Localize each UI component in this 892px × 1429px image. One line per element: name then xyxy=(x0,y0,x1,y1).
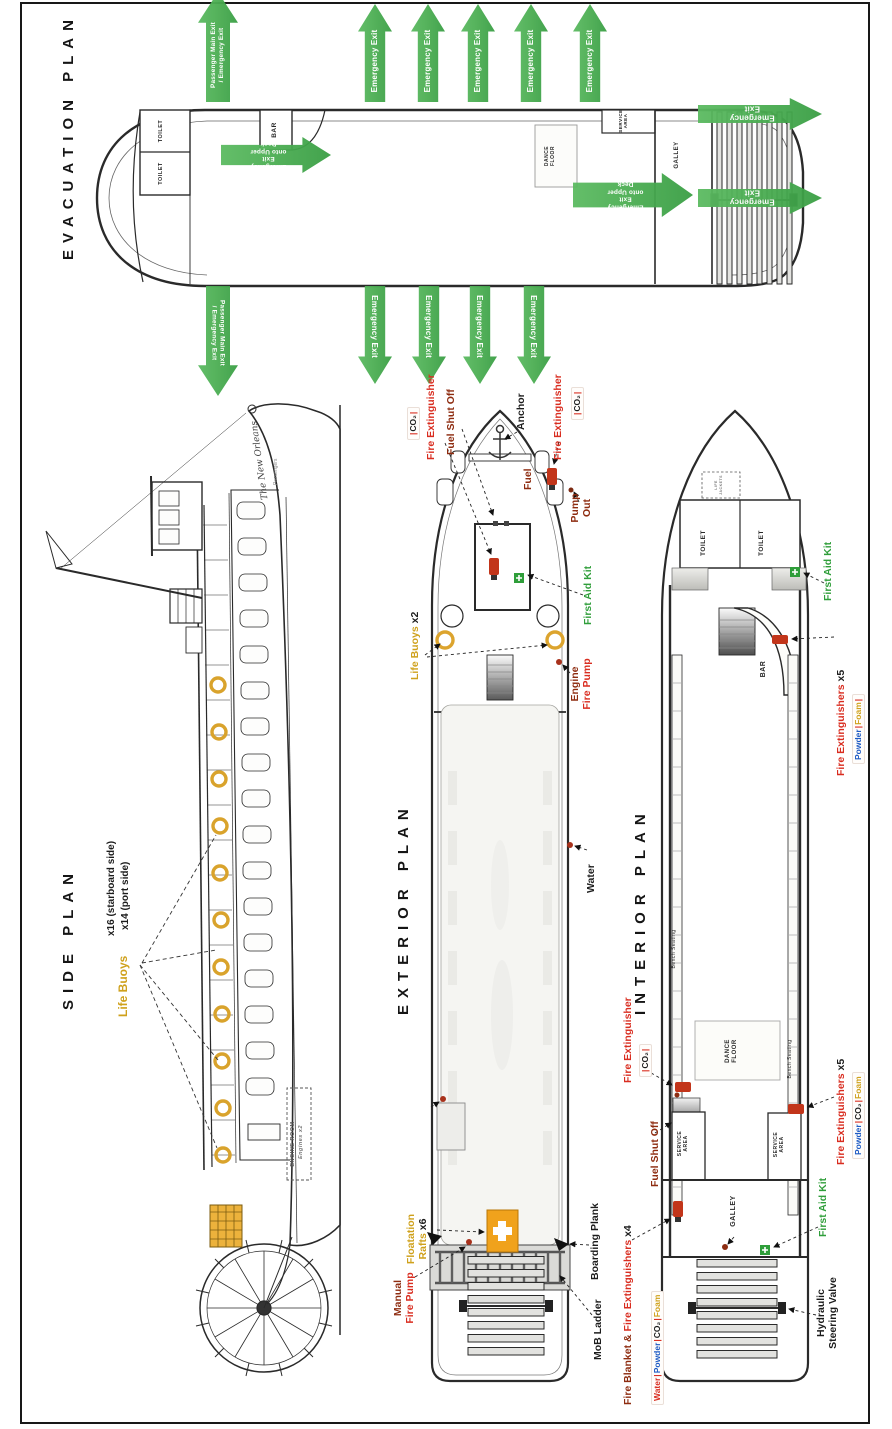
emergency-exit-arrow: Emergency Exit xyxy=(514,4,548,102)
life-buoy-row xyxy=(211,678,230,1162)
ext-table xyxy=(441,605,463,627)
paddle-wheel xyxy=(196,1237,332,1376)
life-buoys-x2-label: Life Buoys x2 xyxy=(410,612,422,680)
water-label: Water xyxy=(586,864,598,893)
life-buoys-label: Life Buoys xyxy=(117,956,130,1017)
engine-room-label: ENGINE ROOM xyxy=(290,1114,296,1174)
ext-wheelhouse xyxy=(475,524,530,610)
side-cabin-windows xyxy=(237,502,274,1095)
int-extinguisher-icon xyxy=(788,1104,804,1114)
plan-sheet: EVACUATION PLAN SIDE PLAN EXTERIOR PLAN … xyxy=(22,4,870,1424)
int-toilet-b-label: TOILET xyxy=(758,523,765,563)
fire-extinguishers-x5-label: Fire Extinguishers x5 xyxy=(836,670,848,776)
evac-dance-floor-label-2: FLOOR xyxy=(550,146,556,166)
first-aid-kit-label: First Aid Kit xyxy=(823,542,835,601)
int-extinguisher-icon xyxy=(675,1082,691,1092)
engine-fire-pump-label: EngineFire Pump xyxy=(570,654,594,714)
water-powder-co2-foam-badges: Water|Powder|CO₂|Foam xyxy=(651,1291,664,1405)
evac-hull xyxy=(97,110,803,286)
int-galley-label: GALLEY xyxy=(730,1186,738,1236)
evacuation-plan-title: EVACUATION PLAN xyxy=(60,13,77,260)
fuel-shut-off-label: Fuel Shut Off xyxy=(446,389,458,455)
ext-table xyxy=(537,605,559,627)
int-side-locker xyxy=(772,568,806,590)
int-service-label-2: AREA xyxy=(683,1135,689,1151)
passengers-plate: Passengers xyxy=(274,459,280,485)
int-extinguisher-icon xyxy=(673,1201,683,1217)
int-dance-label-2: FLOOR xyxy=(732,1039,738,1063)
powder-foam-badges: Powder|Foam| xyxy=(852,694,865,764)
life-buoys-pointer-lines xyxy=(140,835,218,1148)
fire-extinguisher-label: Fire Extinguisher xyxy=(623,997,635,1083)
evac-service-area xyxy=(602,110,655,133)
wheelhouse-extinguisher-icon xyxy=(489,558,499,575)
engine-fire-pump-dot xyxy=(556,659,562,665)
int-bow-locker-label: LIFE JACKETS xyxy=(714,472,723,498)
int-galley-first-aid-icon xyxy=(760,1245,770,1255)
ext-fuel-tank xyxy=(437,1103,465,1150)
manual-fire-pump-label: ManualFire Pump xyxy=(393,1267,417,1329)
ext-fuel-dot xyxy=(440,1096,446,1102)
pump-out-label: Pump Out xyxy=(570,485,594,531)
manual-fire-pump-dot xyxy=(466,1239,472,1245)
hydraulic-steering-valve-label: HydraulicSteering Valve xyxy=(816,1258,840,1368)
floatation-rafts-label: FloatationRafts x6 xyxy=(406,1204,430,1274)
int-bar-label: BAR xyxy=(760,649,768,689)
emergency-exit-arrow: Emergency Exit xyxy=(411,4,445,102)
water-dot xyxy=(567,842,573,848)
boarding-plank-label: Boarding Plank xyxy=(590,1203,602,1280)
ext-fore-extinguisher-icon xyxy=(547,468,557,485)
fire-blanket-extinguishers-label: Fire Blanket & Fire Extinguishers x4 xyxy=(623,1225,635,1405)
co2-badge: |CO₂| xyxy=(407,407,420,440)
stern-counter xyxy=(267,1245,290,1304)
evac-galley-label: GALLEY xyxy=(674,130,681,180)
mob-ladder-grid xyxy=(210,1205,242,1247)
side-door xyxy=(248,1124,280,1140)
fire-extinguisher-label: Fire Extinguisher xyxy=(553,374,565,460)
emergency-exit-arrow: Emergency Exit xyxy=(358,4,392,102)
passenger-main-exit-arrow-port: Passenger Main Exit/ Emergency Exit xyxy=(198,286,238,396)
mob-ladder-label: MoB Ladder xyxy=(593,1299,605,1360)
fire-extinguisher-label: Fire Extinguisher xyxy=(426,374,438,460)
anchor-label: Anchor xyxy=(516,393,528,430)
int-bench-seating-label: Bench Seating xyxy=(788,1024,794,1094)
int-bar-extinguisher-icon xyxy=(772,635,788,644)
side-plan-drawing xyxy=(40,395,412,1395)
fire-extinguishers-x5-label: Fire Extinguishers x5 xyxy=(836,1059,848,1165)
int-galley-dot xyxy=(722,1244,728,1250)
int-toilet-a-label: TOILET xyxy=(700,523,707,563)
int-service-label-2b: AREA xyxy=(779,1136,785,1152)
emergency-exit-arrow: Emergency Exit xyxy=(358,286,392,384)
life-buoys-starboard-count: x16 (starboard side) xyxy=(106,841,117,936)
int-dance-label-1: DANCE xyxy=(725,1039,731,1063)
wheelhouse-first-aid-icon xyxy=(514,573,524,583)
interior-plan-drawing xyxy=(622,335,870,1395)
co2-badge: |CO₂| xyxy=(639,1044,652,1077)
passenger-main-exit-arrow-starboard: Passenger Main Exit/ Emergency Exit xyxy=(198,0,238,102)
evac-bar-label: BAR xyxy=(271,110,278,150)
evac-service-area-label-2: AREA xyxy=(623,114,628,129)
floatation-raft-icon xyxy=(487,1210,518,1252)
side-rail-top xyxy=(204,505,212,1167)
engines-count-label: Engines x2 xyxy=(298,1112,304,1172)
int-bench-seating-label: Bench Seating xyxy=(672,914,678,984)
first-aid-kit-label: First Aid Kit xyxy=(818,1178,830,1237)
emergency-exit-arrow: Emergency Exit xyxy=(573,4,607,102)
co2-badge: |CO₂| xyxy=(571,387,584,420)
int-bow-first-aid-icon xyxy=(790,567,800,577)
life-buoys-port-count: x14 (port side) xyxy=(120,862,131,930)
evac-toilet-a-label: TOILET xyxy=(158,152,164,195)
first-aid-kit-label: First Aid Kit xyxy=(583,566,595,625)
mast xyxy=(56,568,202,598)
int-side-locker xyxy=(672,568,708,590)
emergency-exit-arrow: Emergency Exit xyxy=(461,4,495,102)
fuel-shut-off-label: Fuel Shut Off xyxy=(650,1121,662,1187)
fuel-label: Fuel xyxy=(523,468,535,490)
evac-toilet-b-label: TOILET xyxy=(158,110,164,152)
powder-co2-foam-badges: Powder|CO₂|Foam xyxy=(852,1072,865,1159)
